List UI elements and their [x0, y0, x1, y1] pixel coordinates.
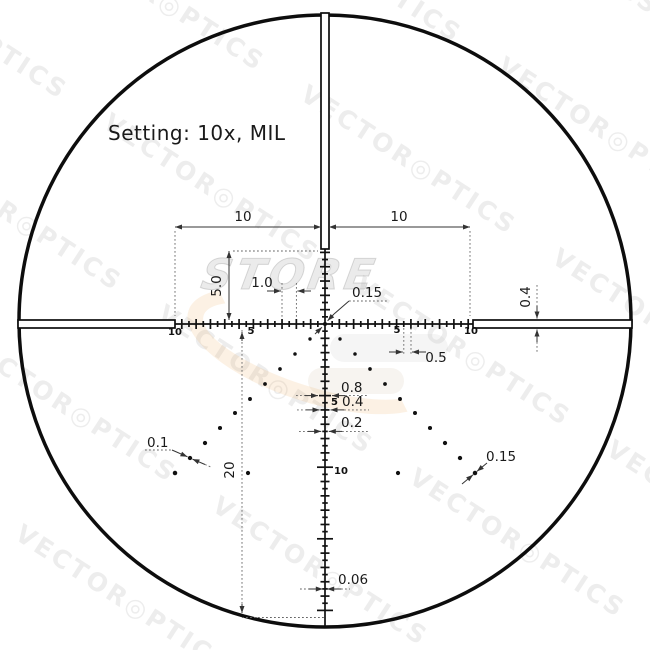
dim-dot-big: 0.15: [486, 449, 516, 465]
label-h-left-10: 10: [168, 327, 182, 338]
setting-label: Setting: 10x, MIL: [108, 121, 286, 145]
dim-tickhalf-width: 0.2: [341, 415, 362, 431]
dim-center-dot: 0.15: [352, 285, 382, 301]
holdover-dot: [443, 441, 447, 445]
holdover-dot: [203, 441, 207, 445]
holdover-dot: [173, 471, 177, 475]
holdover-dot: [368, 367, 372, 371]
dim-half-mil: 0.5: [425, 350, 446, 366]
holdover-dot: [413, 411, 417, 415]
holdover-dot: [263, 382, 267, 386]
holdover-dot: [353, 352, 357, 356]
dim-one-mil: 1.0: [251, 275, 272, 291]
holdover-dot: [458, 456, 462, 460]
holdover-dot: [188, 456, 192, 460]
dim-dot-small: 0.1: [147, 435, 168, 451]
label-h-left-5: 5: [248, 326, 255, 337]
holdover-dot: [248, 397, 252, 401]
holdover-dot: [218, 426, 222, 430]
holdover-dot: [233, 411, 237, 415]
holdover-dot: [278, 367, 282, 371]
dim-line-width: 0.06: [338, 572, 368, 588]
dim-tick1-width: 0.4: [342, 394, 363, 410]
holdover-dot: [383, 382, 387, 386]
reticle-svg: Setting: 10x, MIL 10 10 5.0: [0, 0, 650, 650]
holdover-dot: [428, 426, 432, 430]
dim-span-right: 10: [390, 209, 407, 225]
right-post: [473, 320, 632, 328]
center-dot: [323, 322, 327, 326]
dim-post-gap: 5.0: [209, 275, 225, 296]
holdover-dot: [396, 471, 400, 475]
dim-drop-total: 20: [222, 461, 238, 478]
dim-post-width: 0.4: [518, 286, 534, 307]
holdover-dot: [473, 471, 477, 475]
reticle-diagram: VECTOR◎PTICSVECTOR◎PTICSVECTOR◎PTICSVECT…: [0, 0, 650, 650]
holdover-dot: [293, 352, 297, 356]
label-h-right-5: 5: [394, 325, 401, 336]
label-h-right-10: 10: [464, 326, 478, 337]
holdover-dot: [246, 471, 250, 475]
axis-labels: 10 5 5 10 5 10: [168, 325, 478, 477]
left-post: [18, 320, 175, 328]
holdover-dot: [398, 397, 402, 401]
dimension-annotations: 10 10 5.0 1.0 0.15: [145, 209, 537, 618]
dim-span-left: 10: [234, 209, 251, 225]
label-v-5: 5: [331, 397, 338, 408]
top-post: [321, 13, 329, 249]
label-v-10: 10: [334, 466, 348, 477]
holdover-dot: [308, 337, 311, 340]
holdover-dot: [338, 337, 341, 340]
